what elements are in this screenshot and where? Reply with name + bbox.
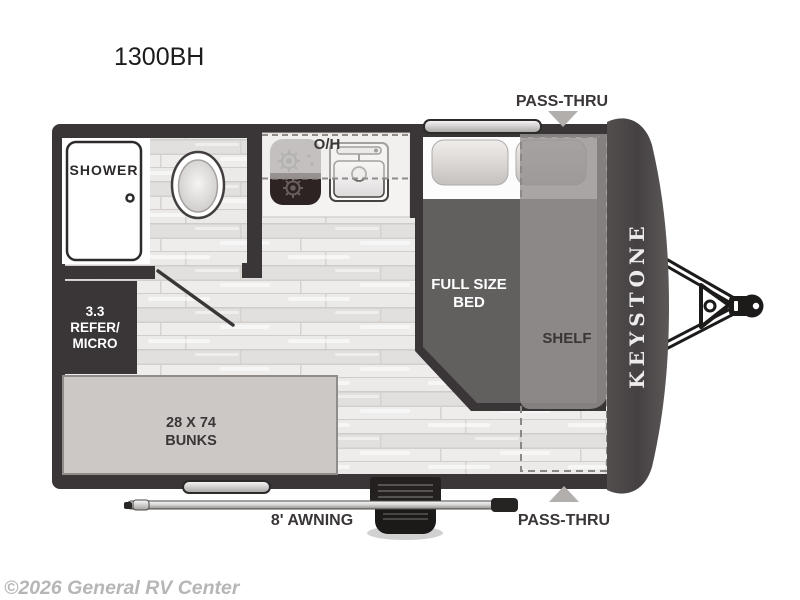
awning-label: 8' AWNING — [271, 512, 353, 529]
entry-door-bar — [183, 481, 270, 493]
bathroom-wall — [247, 124, 262, 278]
passthru-bottom-label: PASS-THRU — [518, 512, 610, 529]
coupler-icon — [729, 295, 764, 318]
bathroom-wall-foot — [242, 263, 262, 278]
bed-label-line1: FULL SIZE — [431, 276, 507, 293]
floorplan-drawing: 1300BH — [0, 0, 800, 600]
refer-label-line2: REFER/ — [70, 320, 120, 335]
window-bar — [424, 120, 541, 133]
refer-label-line3: MICRO — [73, 336, 118, 351]
toilet-icon — [172, 152, 224, 218]
shower-drain-icon — [127, 195, 134, 202]
kitchen-divider-wall — [410, 124, 423, 218]
shower-step-wall — [57, 266, 155, 279]
overhead-label: O/H — [314, 136, 341, 153]
shelf-label: SHELF — [542, 330, 591, 347]
refer-label-line1: 3.3 — [86, 304, 105, 319]
watermark: ©2026 General RV Center — [4, 577, 241, 599]
bunks-label-line2: BUNKS — [165, 433, 217, 449]
shelf-overlay — [520, 134, 608, 409]
bunks-label-line1: 28 X 74 — [166, 415, 216, 431]
shower-label: SHOWER — [70, 162, 139, 178]
keystone-logo: KEYSTONE — [625, 221, 649, 388]
awning-rod — [124, 498, 518, 512]
floorplan-page: 1300BH — [0, 0, 800, 600]
passthru-top-label: PASS-THRU — [516, 93, 608, 110]
pillow-left — [432, 140, 508, 185]
model-title: 1300BH — [114, 43, 204, 71]
shower-stall — [62, 138, 150, 264]
bed-label-line2: BED — [453, 294, 485, 311]
